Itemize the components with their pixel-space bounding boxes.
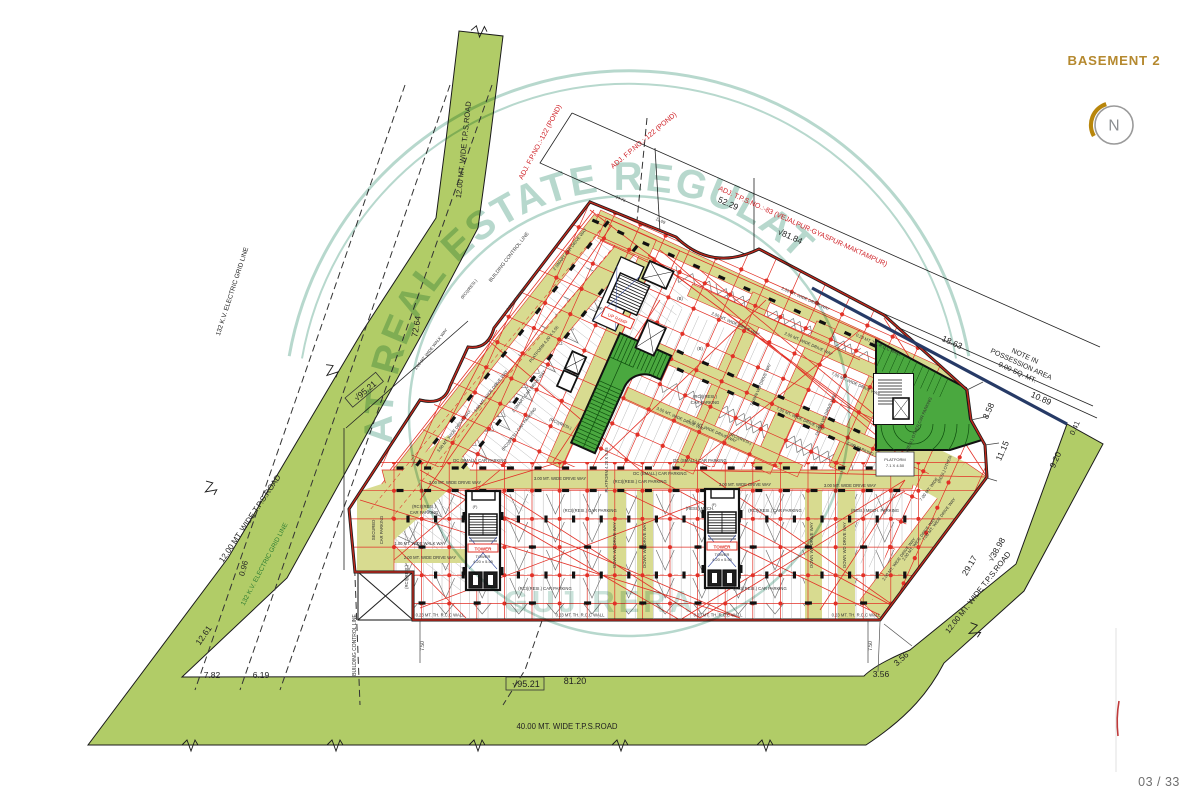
svg-text:CAR PARKING: CAR PARKING xyxy=(410,510,439,515)
svg-text:(RCI)(RESI.) CAR PARKING: (RCI)(RESI.) CAR PARKING xyxy=(563,508,616,513)
svg-text:DC (SMALL) CAR PARKING: DC (SMALL) CAR PARKING xyxy=(453,458,506,463)
svg-text:N: N xyxy=(1108,118,1119,135)
svg-text:(RESI.) MECH.: (RESI.) MECH. xyxy=(686,506,714,511)
svg-text:3.00 MT. WIDE DRIVE WAY: 3.00 MT. WIDE DRIVE WAY xyxy=(719,482,772,487)
svg-text:7.82: 7.82 xyxy=(204,670,221,680)
svg-text:0.23 MT. TH. R.C.C WALL: 0.23 MT. TH. R.C.C WALL xyxy=(556,613,606,618)
svg-text:3.00 MT. WIDE DRIVE WAY: 3.00 MT. WIDE DRIVE WAY xyxy=(429,480,482,485)
svg-text:3.56: 3.56 xyxy=(873,669,890,679)
svg-text:(RESI.) MECH. PARKING: (RESI.) MECH. PARKING xyxy=(851,508,899,513)
svg-text:81.20: 81.20 xyxy=(564,676,587,686)
svg-text:3.00 MT. WIDE DRIVE WAY: 3.00 MT. WIDE DRIVE WAY xyxy=(534,476,587,481)
svg-text:DC (SMALL) CAR PARKING: DC (SMALL) CAR PARKING xyxy=(633,471,686,476)
svg-text:6.19: 6.19 xyxy=(253,670,270,680)
svg-text:DC (SMALL) CAR PARKING: DC (SMALL) CAR PARKING xyxy=(673,458,726,463)
svg-text:(F): (F) xyxy=(473,505,479,509)
svg-text:TOWER: TOWER xyxy=(713,545,731,550)
svg-text:PLATFORM: PLATFORM xyxy=(884,457,905,462)
svg-text:1.00 MT. WIDE WALK WAY: 1.00 MT. WIDE WALK WAY xyxy=(394,541,445,546)
svg-text:(B): (B) xyxy=(677,296,683,301)
svg-text:DOWN WD DRIVE WAY: DOWN WD DRIVE WAY xyxy=(809,522,814,568)
svg-text:DOWN WD DRIVE WAY: DOWN WD DRIVE WAY xyxy=(642,522,647,568)
svg-text:40.00 MT. WIDE T.P.S.ROAD: 40.00 MT. WIDE T.P.S.ROAD xyxy=(516,722,617,731)
svg-text:(RCI)(RESI.) CAR PARKING: (RCI)(RESI.) CAR PARKING xyxy=(518,586,571,591)
svg-text:DOWN WD DRIVE WAY: DOWN WD DRIVE WAY xyxy=(612,522,617,568)
svg-text:CAR PARKING: CAR PARKING xyxy=(379,516,384,545)
svg-text:DOWN WD DRIVE WAY: DOWN WD DRIVE WAY xyxy=(842,522,847,568)
svg-text:(RCI)(RESI.): (RCI)(RESI.) xyxy=(693,394,717,399)
svg-text:7.50: 7.50 xyxy=(868,641,874,651)
svg-text:BUILDING CONTROL LINE: BUILDING CONTROL LINE xyxy=(352,613,358,675)
svg-text:TOWER: TOWER xyxy=(474,547,492,552)
svg-text:4.20 x 5.55: 4.20 x 5.55 xyxy=(473,559,494,564)
svg-text:4.20 x 5.55: 4.20 x 5.55 xyxy=(712,557,733,562)
svg-text:(RCI)(RESI.): (RCI)(RESI.) xyxy=(412,504,436,509)
svg-text:√95.21: √95.21 xyxy=(512,679,539,689)
svg-text:0.23 MT. TH. R.C.C WALL: 0.23 MT. TH. R.C.C WALL xyxy=(694,613,744,618)
svg-text:(RCI)(RESI.) CAR PARKING: (RCI)(RESI.) CAR PARKING xyxy=(733,586,786,591)
svg-text:BASEMENT 2: BASEMENT 2 xyxy=(1068,53,1161,68)
svg-text:(RCI)(RESI.): (RCI)(RESI.) xyxy=(404,565,409,589)
svg-text:(RCI)(RESI.) CAR PARKING: (RCI)(RESI.) CAR PARKING xyxy=(748,508,801,513)
svg-text:7.50: 7.50 xyxy=(420,641,426,651)
svg-text:3.00 MT. WIDE DRIVE WAY: 3.00 MT. WIDE DRIVE WAY xyxy=(824,483,877,488)
svg-text:03 / 33: 03 / 33 xyxy=(1138,775,1180,789)
svg-text:0.23 MT. TH. R.C.C WALL: 0.23 MT. TH. R.C.C WALL xyxy=(832,613,882,618)
svg-text:PLATFORM 4.20 X 5.55: PLATFORM 4.20 X 5.55 xyxy=(604,447,609,493)
svg-text:0.23 MT. TH. R.C.C WALL: 0.23 MT. TH. R.C.C WALL xyxy=(416,613,466,618)
svg-text:CAR PARKING: CAR PARKING xyxy=(691,400,720,405)
svg-text:2.00 MT. WIDE DRIVE WAY: 2.00 MT. WIDE DRIVE WAY xyxy=(404,555,457,560)
svg-text:(B): (B) xyxy=(697,346,703,351)
svg-text:(RCI)(RESI.) CAR PARKING: (RCI)(RESI.) CAR PARKING xyxy=(613,479,666,484)
svg-text:SECURED: SECURED xyxy=(371,520,376,540)
svg-text:7.1 X 4.50: 7.1 X 4.50 xyxy=(886,463,905,468)
